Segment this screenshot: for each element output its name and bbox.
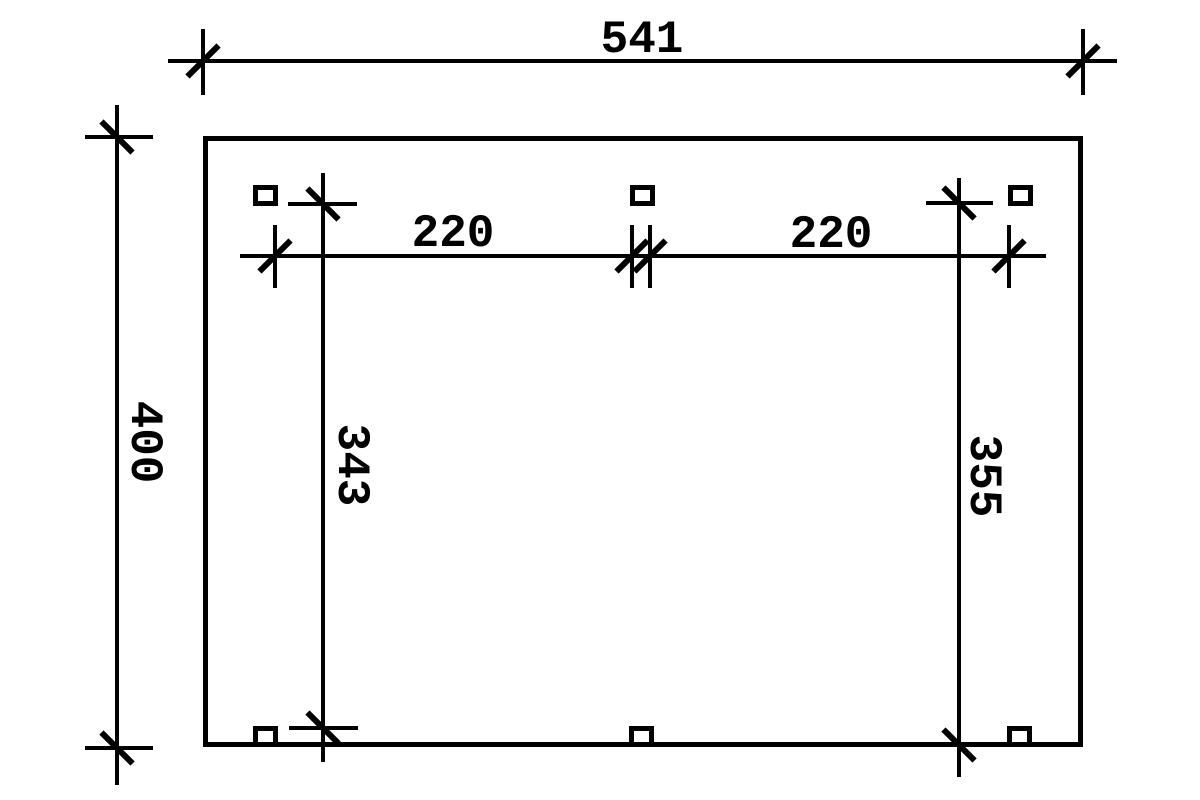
post-marker-bottom-right xyxy=(1007,726,1032,747)
post-marker-top-middle xyxy=(630,185,655,206)
dim-label-total-width: 541 xyxy=(601,17,684,63)
technical-drawing-canvas: 541 400 220 220 343 355 xyxy=(0,0,1200,800)
post-marker-top-left xyxy=(253,185,278,206)
dim-label-clear-span-right: 220 xyxy=(790,212,873,258)
post-marker-bottom-middle xyxy=(629,726,654,747)
post-marker-bottom-left xyxy=(253,726,278,747)
dim-label-inner-depth-right: 355 xyxy=(960,435,1006,518)
dim-label-total-depth: 400 xyxy=(121,401,167,484)
dim-label-clear-span-left: 220 xyxy=(412,211,495,257)
post-marker-top-right xyxy=(1008,185,1033,206)
dim-label-inner-depth-left: 343 xyxy=(328,424,374,507)
